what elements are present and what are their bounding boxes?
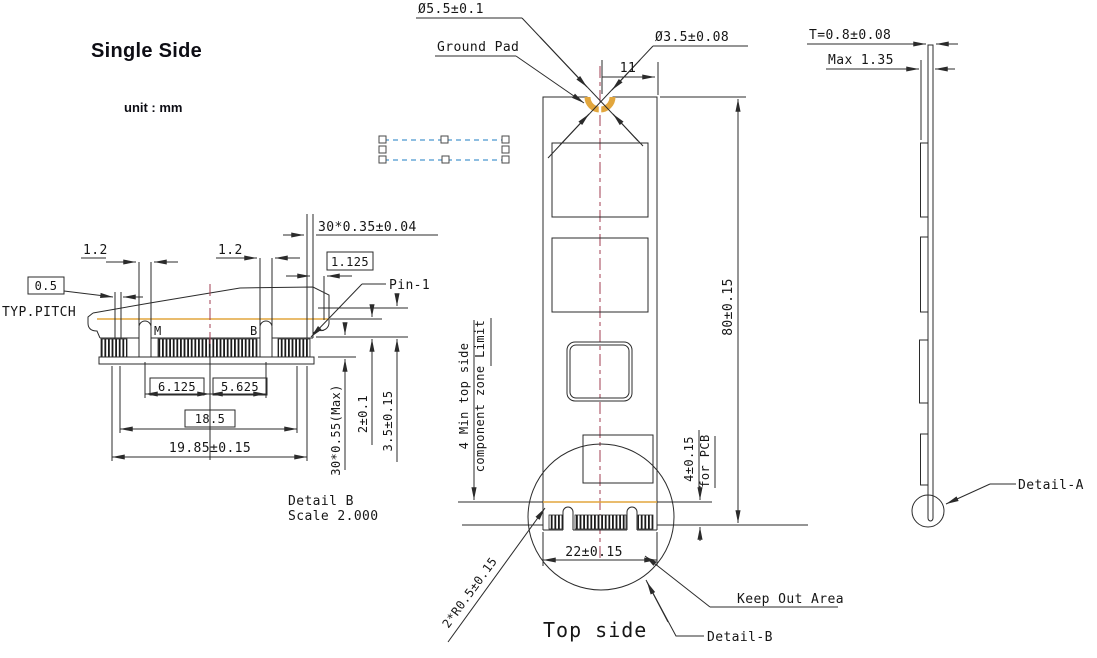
detail-caption-1: Detail B: [288, 494, 354, 509]
key-b-label: B: [250, 324, 258, 338]
side-component-3: [920, 340, 929, 403]
pad-height-dim: 30*0.55(Max): [329, 384, 343, 476]
leader-line: [448, 508, 545, 642]
profile-top-edge: [93, 287, 329, 338]
edge-pads-group: [575, 515, 626, 529]
max-height-dim: Max 1.35: [828, 53, 894, 68]
selection-handle[interactable]: [502, 156, 509, 163]
gap-right-dim: 1.2: [218, 243, 243, 258]
page-title: Single Side: [91, 40, 202, 62]
center-offset-dim: 11: [620, 61, 636, 76]
pad-group-left: [101, 339, 127, 357]
detail-caption-2: Scale 2.000: [288, 509, 379, 524]
unit-note: unit : mm: [124, 100, 183, 115]
inner-diameter-label: Ø3.5±0.08: [655, 30, 729, 45]
height-dim-35: 3.5±0.15: [381, 391, 395, 452]
edge-pads-group: [638, 515, 653, 529]
leader-line: [646, 580, 704, 636]
pin1-label: Pin-1: [389, 278, 430, 293]
selection-handle[interactable]: [441, 136, 448, 143]
selection-handle[interactable]: [502, 146, 509, 153]
inner-dim: 18.5: [195, 412, 226, 426]
view-caption: Top side: [543, 618, 647, 642]
pad-group-right: [278, 339, 310, 357]
keep-out-label: Keep Out Area: [737, 592, 844, 607]
leader-arrow: [613, 114, 638, 141]
leader-arrow: [560, 114, 589, 145]
component-zone-dim: 4 Min top side component zone Limit: [457, 318, 491, 500]
key-notch-left: [563, 507, 573, 530]
selection-marquee[interactable]: [379, 136, 509, 163]
key-notch-right: [627, 507, 637, 530]
leader-arrow: [946, 484, 990, 504]
key-slot-b: [260, 321, 272, 357]
side-component-2: [921, 237, 929, 312]
ground-pad-callouts: Ø5.5±0.1 Ground Pad Ø3.5±0.08 11: [416, 2, 748, 158]
outer-diameter-label: Ø5.5±0.1: [418, 2, 484, 17]
length-dim: 80±0.15: [721, 278, 736, 336]
pitch-label: TYP.PITCH: [2, 305, 76, 320]
pitch-dim: 0.5: [35, 279, 58, 293]
cad-drawing: Single Side unit : mm: [0, 0, 1097, 653]
leader-arrow: [647, 582, 668, 622]
zone-text-1: 4 Min top side: [457, 343, 471, 450]
leader-arrow: [645, 556, 710, 607]
selection-handle[interactable]: [379, 146, 386, 153]
overall-dim: 19.85±0.15: [169, 441, 251, 456]
corner-radius-dim: 2*R0.5±0.15: [439, 555, 500, 631]
height-dim-2: 2±0.1: [356, 395, 370, 433]
connector-base: [99, 357, 314, 364]
dim-arrow: [64, 291, 113, 297]
pad-width-dim: 30*0.35±0.04: [318, 220, 417, 235]
width-dim: 22±0.15: [565, 545, 623, 560]
b-center-dim: 5.625: [221, 380, 259, 394]
gap-left-dim: 1.2: [83, 243, 108, 258]
side-component-1: [921, 143, 929, 217]
m-center-dim: 6.125: [158, 380, 196, 394]
leader-arrow: [540, 37, 587, 87]
selection-handle[interactable]: [379, 156, 386, 163]
selection-handle[interactable]: [442, 156, 449, 163]
pcb-dim: 4±0.15: [682, 436, 696, 482]
detail-b-view: M B 0.5 TYP.PITCH 1.2 1.2 30*0.3: [2, 214, 438, 524]
zone-text-2: component zone Limit: [473, 320, 487, 473]
leader-arrow: [311, 284, 362, 337]
detail-b-label: Detail-B: [707, 630, 773, 645]
key-m-label: M: [154, 324, 162, 338]
selection-handle[interactable]: [379, 136, 386, 143]
module-side-view: T=0.8±0.08 Max 1.35 Detail-A: [807, 28, 1084, 527]
module-top-view: [458, 66, 808, 590]
module-right-dims: 80±0.15 4±0.15 for PCB: [660, 97, 746, 541]
leader-arrow: [516, 56, 584, 103]
edge-pad-dim: 1.125: [331, 255, 369, 269]
thickness-dim: T=0.8±0.08: [809, 28, 891, 43]
drawing-sheet: Single Side unit : mm: [0, 0, 1097, 653]
profile-left-edge: [88, 313, 100, 338]
component-chip-4: [583, 435, 653, 483]
detail-a-label: Detail-A: [1018, 478, 1084, 493]
pcb-side-profile: [928, 45, 933, 521]
side-component-4: [921, 434, 929, 485]
pcb-dim-suffix: for PCB: [698, 434, 712, 487]
edge-pads-group: [549, 515, 563, 529]
key-slot-m: [139, 321, 151, 357]
pad-group-middle: [158, 339, 257, 357]
selection-handle[interactable]: [502, 136, 509, 143]
ground-pad-label: Ground Pad: [437, 40, 519, 55]
